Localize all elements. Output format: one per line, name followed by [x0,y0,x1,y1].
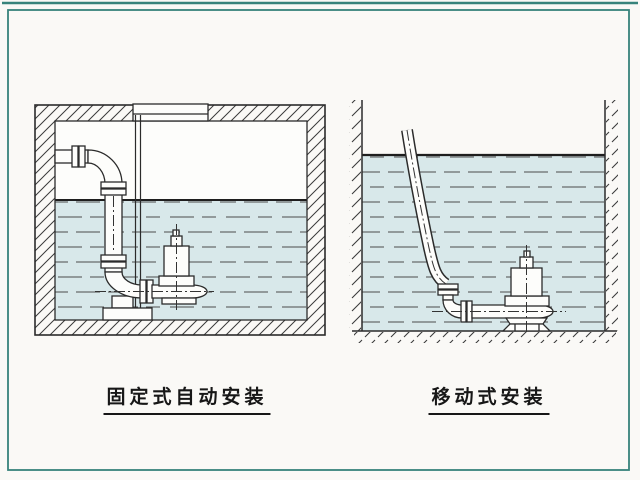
portable-installation-diagram [349,100,618,343]
pipe-flange [101,255,126,268]
pipe-flange [72,146,85,167]
pipe-flange [101,182,126,195]
caption-fixed-installation: 固定式自动安装 [103,387,270,415]
scanned-catalog-page: 固定式自动安装 移动式安装 [0,0,640,480]
caption-portable-installation: 移动式安装 [428,387,549,415]
access-cover [133,104,208,121]
fixed-installation-diagram [35,104,325,335]
